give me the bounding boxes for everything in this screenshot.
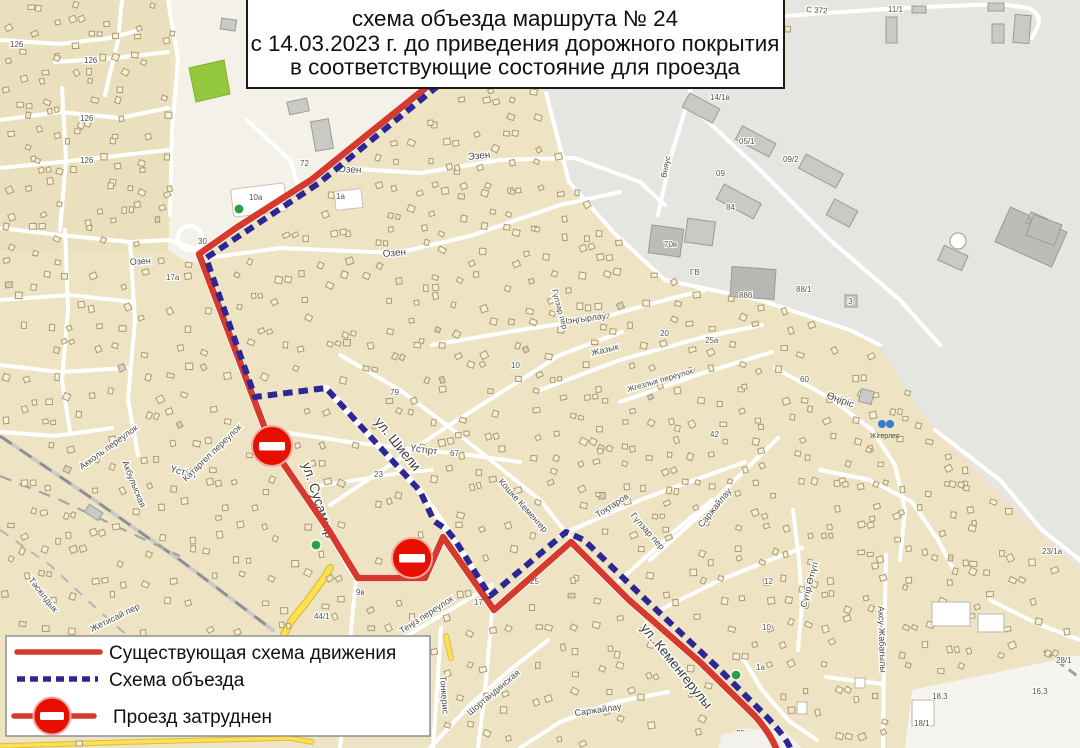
svg-text:05/1: 05/1 <box>739 137 755 146</box>
svg-text:14/1в: 14/1в <box>710 93 730 102</box>
svg-text:Жігерлес: Жігерлес <box>870 432 900 440</box>
svg-text:Проезд затруднен: Проезд затруднен <box>113 707 272 728</box>
svg-text:25а: 25а <box>705 336 719 345</box>
svg-text:28/1: 28/1 <box>1056 656 1072 665</box>
svg-text:в соответствующие состояние дл: в соответствующие состояние для проезда <box>290 55 741 80</box>
svg-text:79: 79 <box>390 388 399 397</box>
svg-text:42: 42 <box>710 430 719 439</box>
svg-text:09/2: 09/2 <box>783 155 799 164</box>
svg-text:1а: 1а <box>756 663 765 672</box>
svg-text:126: 126 <box>80 156 94 165</box>
svg-text:Схема объезда: Схема объезда <box>109 670 245 691</box>
svg-text:ГВ: ГВ <box>690 268 700 277</box>
svg-text:схема объезда маршрута № 24: схема объезда маршрута № 24 <box>352 6 678 31</box>
svg-text:30: 30 <box>198 237 207 246</box>
svg-text:72: 72 <box>300 159 309 168</box>
svg-text:70в: 70в <box>664 240 677 249</box>
svg-text:23/1а: 23/1а <box>1042 547 1063 556</box>
svg-text:Озен: Озен <box>382 247 406 260</box>
svg-text:23: 23 <box>374 470 383 479</box>
svg-text:126: 126 <box>10 40 24 49</box>
svg-text:18/1: 18/1 <box>914 719 930 728</box>
svg-text:88б: 88б <box>739 291 753 300</box>
svg-text:9в: 9в <box>356 588 365 597</box>
svg-text:44/1: 44/1 <box>314 612 330 621</box>
svg-text:67: 67 <box>450 449 459 458</box>
svg-text:12: 12 <box>764 577 773 586</box>
svg-text:17: 17 <box>474 598 483 607</box>
svg-text:126: 126 <box>80 114 94 123</box>
svg-text:09: 09 <box>716 169 725 178</box>
svg-text:84: 84 <box>726 203 735 212</box>
svg-text:с 14.03.2023 г. до приведения: с 14.03.2023 г. до приведения дорожного … <box>251 31 780 56</box>
svg-text:С 372: С 372 <box>806 5 828 16</box>
svg-text:126: 126 <box>84 56 98 65</box>
svg-text:60: 60 <box>800 375 809 384</box>
svg-text:16,3: 16,3 <box>1032 687 1048 696</box>
svg-text:17а: 17а <box>166 273 180 282</box>
svg-text:3: 3 <box>848 297 853 306</box>
svg-text:11/1: 11/1 <box>888 5 904 14</box>
svg-text:1а: 1а <box>336 192 345 201</box>
svg-text:Озен: Озен <box>129 256 151 267</box>
svg-text:Существующая схема движения: Существующая схема движения <box>109 643 396 664</box>
svg-text:88/1: 88/1 <box>796 285 812 294</box>
svg-text:10: 10 <box>511 361 520 370</box>
svg-text:18,3: 18,3 <box>932 692 948 701</box>
svg-text:10: 10 <box>762 623 771 632</box>
svg-text:10а: 10а <box>249 193 263 202</box>
svg-text:20: 20 <box>660 329 669 338</box>
